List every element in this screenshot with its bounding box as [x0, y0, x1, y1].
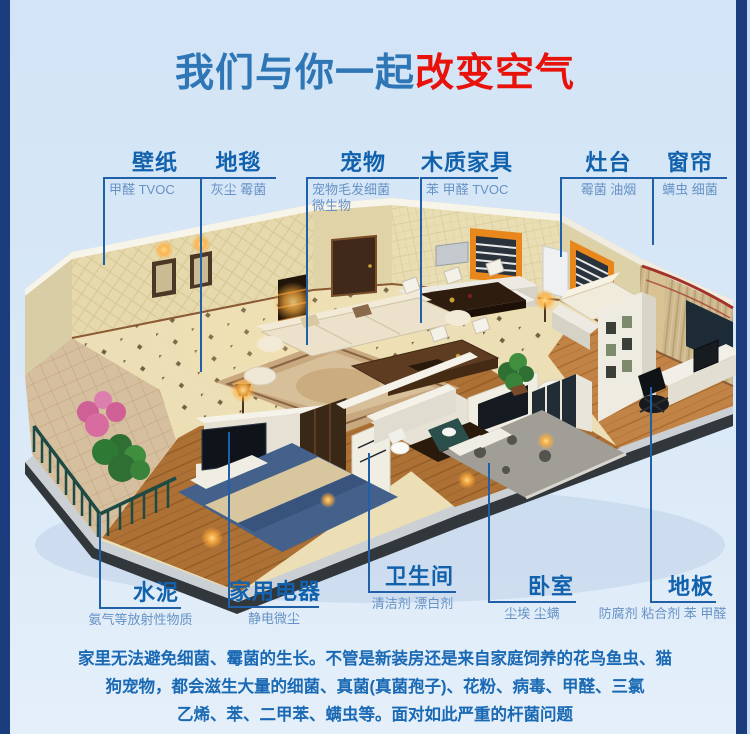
callout-bathroom-title: 卫生间	[369, 564, 456, 590]
callout-pets-sub: 宠物毛发细菌	[312, 182, 390, 197]
paragraph-line-1: 家里无法避免细菌、霉菌的生长。不管是新装房还是来自家庭饲养的花鸟鱼虫、猫	[0, 645, 750, 673]
callout-pets-sub2: 微生物	[312, 198, 351, 213]
callout-floor-sub: 防腐剂 粘合剂 苯 甲醛	[599, 606, 727, 621]
callout-appliances-title: 家用电器	[229, 579, 319, 605]
callout-carpet-sub: 灰尘 霉菌	[211, 182, 267, 197]
callout-carpet: 地毯 灰尘 霉菌	[201, 150, 276, 176]
callout-pets-title: 宠物	[307, 150, 419, 176]
callout-wood-furniture-title: 木质家具	[421, 150, 498, 176]
entry-door	[332, 236, 376, 296]
callout-bathroom: 卫生间 清洁剂 漂白剂	[369, 564, 456, 590]
right-border	[736, 0, 747, 734]
paragraph-line-2: 狗宠物，都会滋生大量的细菌、真菌(真菌孢子)、花粉、病毒、甲醛、三氯	[0, 673, 750, 701]
title-blue-part: 我们与你一起	[175, 52, 415, 95]
callout-bathroom-sub: 清洁剂 漂白剂	[372, 596, 454, 611]
callout-bedroom-sub: 尘埃 尘螨	[504, 606, 560, 621]
page-title: 我们与你一起改变空气	[0, 42, 750, 98]
callout-stove: 灶台 霉菌 油烟	[561, 150, 656, 176]
callout-pets: 宠物 宠物毛发细菌 微生物	[307, 150, 419, 176]
paragraph-line-3: 乙烯、苯、二甲苯、螨虫等。面对如此严重的杆菌问题	[0, 701, 750, 729]
callout-cement: 水泥 氨气等放射性物质	[100, 580, 181, 606]
description-paragraph: 家里无法避免细菌、霉菌的生长。不管是新装房还是来自家庭饲养的花鸟鱼虫、猫 狗宠物…	[0, 645, 750, 729]
callout-wallpaper-sub: 甲醛 TVOC	[109, 182, 175, 197]
callout-curtain: 窗帘 螨虫 细菌	[653, 150, 727, 176]
callout-appliances-sub: 静电微尘	[248, 611, 300, 626]
callout-floor-title: 地板	[651, 574, 716, 600]
callout-wallpaper: 壁纸 甲醛 TVOC	[104, 150, 206, 176]
callout-bedroom-title: 卧室	[488, 574, 576, 600]
callout-curtain-sub: 螨虫 细菌	[662, 182, 718, 197]
callout-wallpaper-title: 壁纸	[104, 150, 206, 176]
callout-cement-title: 水泥	[100, 580, 181, 606]
kitchen-window-1	[470, 228, 522, 284]
callout-cement-sub: 氨气等放射性物质	[88, 612, 192, 627]
left-border	[0, 0, 10, 734]
callout-wood-furniture: 木质家具 苯 甲醛 TVOC	[421, 150, 498, 176]
callout-stove-title: 灶台	[561, 150, 656, 176]
callout-wood-furniture-sub: 苯 甲醛 TVOC	[426, 182, 508, 197]
callout-carpet-title: 地毯	[201, 150, 276, 176]
callout-appliances: 家用电器 静电微尘	[229, 579, 319, 605]
callout-floor: 地板 防腐剂 粘合剂 苯 甲醛	[651, 574, 716, 600]
callout-bedroom: 卧室 尘埃 尘螨	[488, 574, 576, 600]
callout-curtain-title: 窗帘	[653, 150, 727, 176]
callout-stove-sub: 霉菌 油烟	[581, 182, 637, 197]
title-red-part: 改变空气	[415, 52, 575, 95]
page: 我们与你一起改变空气 壁纸 甲醛 TVOC 地毯 灰尘 霉菌 宠物 宠物毛发细菌…	[0, 0, 750, 734]
